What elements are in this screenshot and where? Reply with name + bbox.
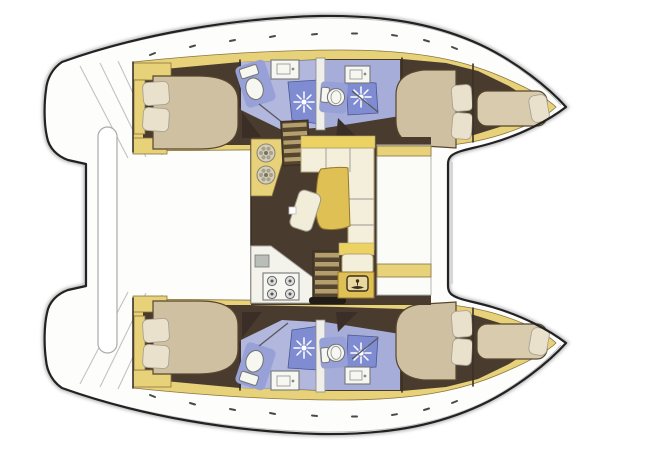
lagoon-emblem-icon (347, 276, 368, 291)
chart-area-panel (377, 145, 431, 295)
galley-sink-icon (257, 166, 275, 184)
galley-sink-icon (257, 144, 275, 162)
stove-burner-icon (267, 276, 276, 285)
salon-cabinet (338, 243, 374, 298)
galley-appliance (255, 255, 269, 267)
table-leg-mark (289, 207, 296, 214)
settee-backrest (301, 136, 375, 148)
floor-plan-canvas (0, 0, 645, 450)
stove-burner-icon (285, 289, 294, 298)
stove-burner-icon (267, 289, 276, 298)
aft-platform-bar (98, 127, 117, 353)
boat-floor-plan (0, 0, 645, 450)
salon (251, 120, 431, 305)
stove-burner-icon (285, 276, 294, 285)
